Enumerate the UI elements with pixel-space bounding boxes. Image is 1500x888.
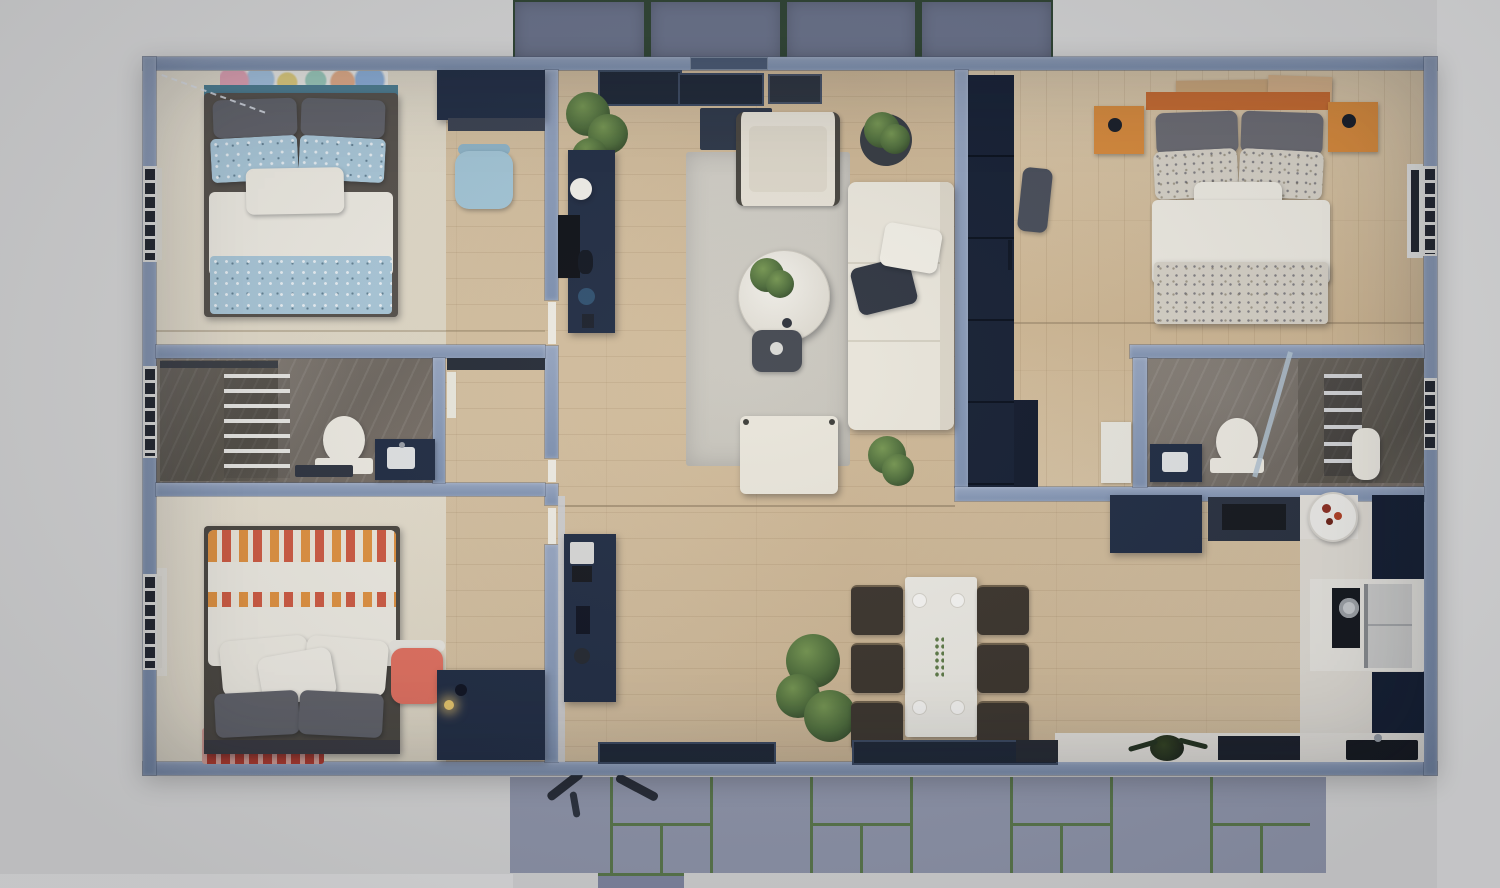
table-decor bbox=[782, 318, 792, 328]
duvet-pattern-stripe bbox=[208, 592, 396, 607]
window-glass-master bbox=[1411, 170, 1419, 252]
sphere-lamp bbox=[570, 178, 592, 200]
paver-joint bbox=[1260, 823, 1263, 873]
front-patio bbox=[513, 0, 1053, 62]
entry-glazing bbox=[768, 74, 822, 104]
paver-joint bbox=[660, 823, 663, 873]
sideboard-decor bbox=[574, 648, 590, 664]
end-mat bbox=[1016, 740, 1058, 762]
paver-joint bbox=[1110, 777, 1113, 873]
duvet-foot bbox=[1154, 262, 1328, 324]
entry-glazing bbox=[678, 73, 764, 106]
console-decor bbox=[582, 314, 594, 328]
wardrobe bbox=[437, 70, 545, 120]
wall-corridor-right bbox=[955, 70, 968, 487]
round-rug bbox=[1308, 492, 1358, 542]
plate bbox=[912, 593, 927, 608]
coffee-machine-base bbox=[572, 566, 592, 582]
chair-seat bbox=[455, 151, 513, 209]
vase bbox=[578, 250, 593, 274]
dining-chair bbox=[851, 643, 903, 693]
desk bbox=[448, 118, 545, 131]
door-bathroom-left bbox=[548, 460, 556, 482]
nightstand-lamp bbox=[1342, 114, 1356, 128]
pillow bbox=[298, 690, 384, 738]
nook-shelf bbox=[447, 358, 545, 370]
ottoman-leg bbox=[743, 419, 749, 425]
armchair bbox=[736, 112, 840, 206]
dresser bbox=[1014, 400, 1038, 487]
bath-mat bbox=[295, 465, 353, 477]
tall-wardrobe bbox=[968, 75, 1014, 487]
tv bbox=[558, 215, 580, 278]
armchair-cushion bbox=[749, 126, 827, 192]
island bbox=[1110, 495, 1202, 553]
paver-joint bbox=[710, 777, 713, 873]
chair-seat bbox=[391, 648, 443, 704]
plate bbox=[950, 700, 965, 715]
dining-table bbox=[905, 577, 977, 737]
plant-foliage bbox=[766, 270, 794, 298]
shower-rail bbox=[160, 361, 278, 368]
wall-master-bath bbox=[1130, 345, 1424, 358]
table-plant bbox=[750, 256, 798, 304]
potted-plant bbox=[866, 436, 918, 490]
pillow bbox=[212, 98, 297, 139]
cooktop bbox=[1332, 588, 1360, 648]
plate bbox=[950, 593, 965, 608]
back-patio-tab bbox=[598, 873, 684, 888]
dining-chair bbox=[977, 585, 1029, 635]
paver-joint bbox=[910, 777, 913, 873]
paver-joint bbox=[1060, 823, 1063, 873]
ottoman-leg bbox=[829, 419, 835, 425]
coffee-machine bbox=[570, 542, 594, 564]
desk-lamp-glow bbox=[444, 700, 454, 710]
nightstand bbox=[1328, 102, 1378, 152]
pot bbox=[1339, 598, 1359, 618]
front-paver bbox=[920, 0, 1053, 62]
wardrobe-handle bbox=[1008, 240, 1012, 270]
plant-shadow bbox=[569, 791, 580, 818]
stool-cushion bbox=[770, 342, 783, 355]
sofa-seam bbox=[848, 340, 940, 342]
sink bbox=[1162, 452, 1188, 472]
sideboard-decor bbox=[576, 606, 590, 634]
window-bathroom-left bbox=[143, 366, 157, 458]
door-bedroom-blue bbox=[548, 302, 556, 344]
shower-slats bbox=[224, 374, 290, 478]
sink bbox=[387, 447, 415, 469]
wall-corridor-left bbox=[545, 346, 558, 458]
appliance-seam bbox=[1368, 624, 1412, 626]
appliance-front bbox=[1364, 584, 1412, 668]
faucet bbox=[399, 442, 405, 448]
dining-chair bbox=[851, 585, 903, 635]
headboard bbox=[1146, 92, 1330, 110]
wall-corridor-left bbox=[545, 545, 558, 762]
window-bedroom-blue bbox=[143, 166, 157, 262]
dining-chair bbox=[977, 643, 1029, 693]
door-bedroom-coral bbox=[548, 508, 556, 544]
wall-top bbox=[143, 57, 1437, 70]
backdrop-bottom-strip bbox=[0, 874, 513, 888]
nook-door bbox=[447, 372, 456, 418]
blanket bbox=[210, 256, 392, 314]
table-garnish bbox=[934, 636, 944, 678]
front-door bbox=[690, 57, 768, 70]
bowl-decor bbox=[578, 288, 595, 305]
duvet-pattern-band bbox=[208, 530, 396, 562]
floor-seam bbox=[558, 505, 955, 507]
fruit bbox=[1326, 518, 1333, 525]
tall-cabinet bbox=[1372, 495, 1424, 579]
plant-foliage bbox=[880, 124, 910, 154]
counter-dark-segment bbox=[1218, 736, 1300, 760]
plant-shadow bbox=[615, 773, 660, 803]
front-paver bbox=[785, 0, 918, 62]
ottoman bbox=[740, 416, 838, 494]
nightstand-lamp bbox=[1108, 118, 1122, 132]
toilet-bowl bbox=[323, 416, 365, 464]
window-bath-right bbox=[1423, 378, 1437, 450]
dresser bbox=[437, 670, 545, 760]
front-paver bbox=[513, 0, 646, 62]
wall-corridor-left bbox=[545, 484, 558, 505]
window-master bbox=[1423, 166, 1437, 256]
floor-plan-render bbox=[0, 0, 1500, 888]
potted-plant bbox=[862, 110, 914, 162]
sink bbox=[1346, 740, 1418, 760]
wall-bath-bedroom-left bbox=[156, 483, 545, 496]
front-paver bbox=[649, 0, 782, 62]
headboard bbox=[204, 740, 400, 754]
floor-plant bbox=[776, 634, 856, 748]
wall-bottom bbox=[143, 762, 1437, 775]
sofa-backrest bbox=[940, 182, 954, 430]
fruit bbox=[1322, 504, 1331, 513]
pillow bbox=[300, 98, 385, 139]
counter-appliance bbox=[1222, 504, 1286, 530]
plant-foliage bbox=[804, 690, 856, 742]
paver-joint bbox=[860, 823, 863, 873]
fruit bbox=[1334, 512, 1342, 520]
back-patio bbox=[510, 777, 1326, 873]
window-strip bbox=[598, 742, 776, 764]
faucet bbox=[1374, 734, 1382, 742]
wall-bath-right-inner bbox=[1133, 358, 1147, 487]
window-sill bbox=[157, 168, 162, 260]
floor-seam bbox=[156, 330, 545, 332]
plant-foliage bbox=[882, 454, 914, 486]
plate bbox=[912, 700, 927, 715]
pillow bbox=[214, 690, 300, 738]
backdrop-right-band bbox=[1437, 0, 1500, 888]
window-bedroom-coral bbox=[143, 574, 157, 670]
window-sill bbox=[157, 576, 162, 668]
counter-plant bbox=[1126, 733, 1210, 763]
wall-corridor-left bbox=[545, 70, 558, 300]
pillow bbox=[246, 167, 345, 215]
tub bbox=[1352, 428, 1380, 480]
wall-bedroom-bath-left bbox=[156, 345, 545, 358]
door-bathroom-right bbox=[1101, 422, 1131, 483]
desk-lamp bbox=[455, 684, 467, 696]
